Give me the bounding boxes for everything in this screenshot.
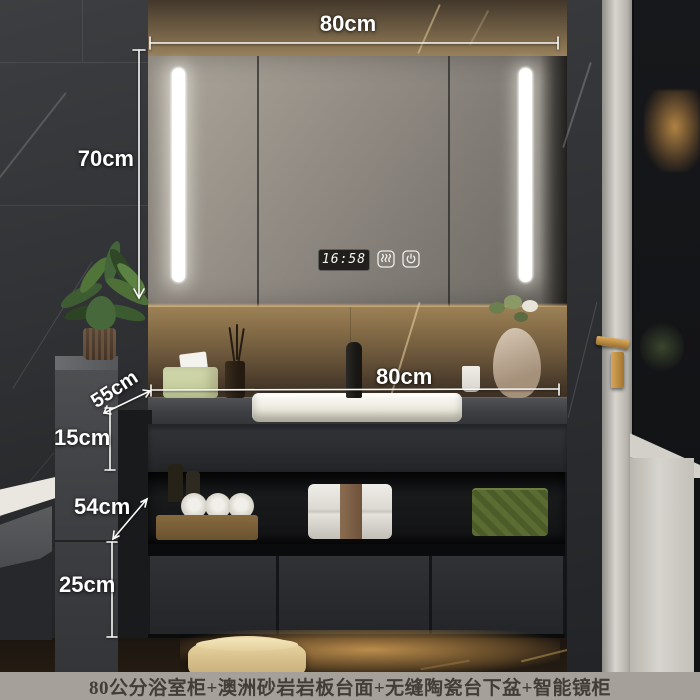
product-photo: 16:58 — [0, 0, 700, 700]
dim-label-drawer-height: 25cm — [59, 574, 115, 596]
dim-label-counter-front-height: 15cm — [54, 427, 108, 449]
caption-bar: 80公分浴室柜+澳洲砂岩岩板台面+无缝陶瓷台下盆+智能镜柜 — [0, 672, 700, 700]
dim-line-counter-width — [151, 384, 559, 396]
dim-label-shelf-height: 54cm — [74, 496, 130, 518]
dim-label-counter-width: 80cm — [376, 366, 434, 388]
dim-label-mirror-width: 80cm — [312, 13, 384, 35]
dim-line-mirror-width — [150, 37, 558, 49]
product-caption: 80公分浴室柜+澳洲砂岩岩板台面+无缝陶瓷台下盆+智能镜柜 — [89, 673, 611, 700]
dim-line-mirror-height — [133, 50, 145, 298]
dim-label-mirror-height: 70cm — [76, 148, 134, 170]
